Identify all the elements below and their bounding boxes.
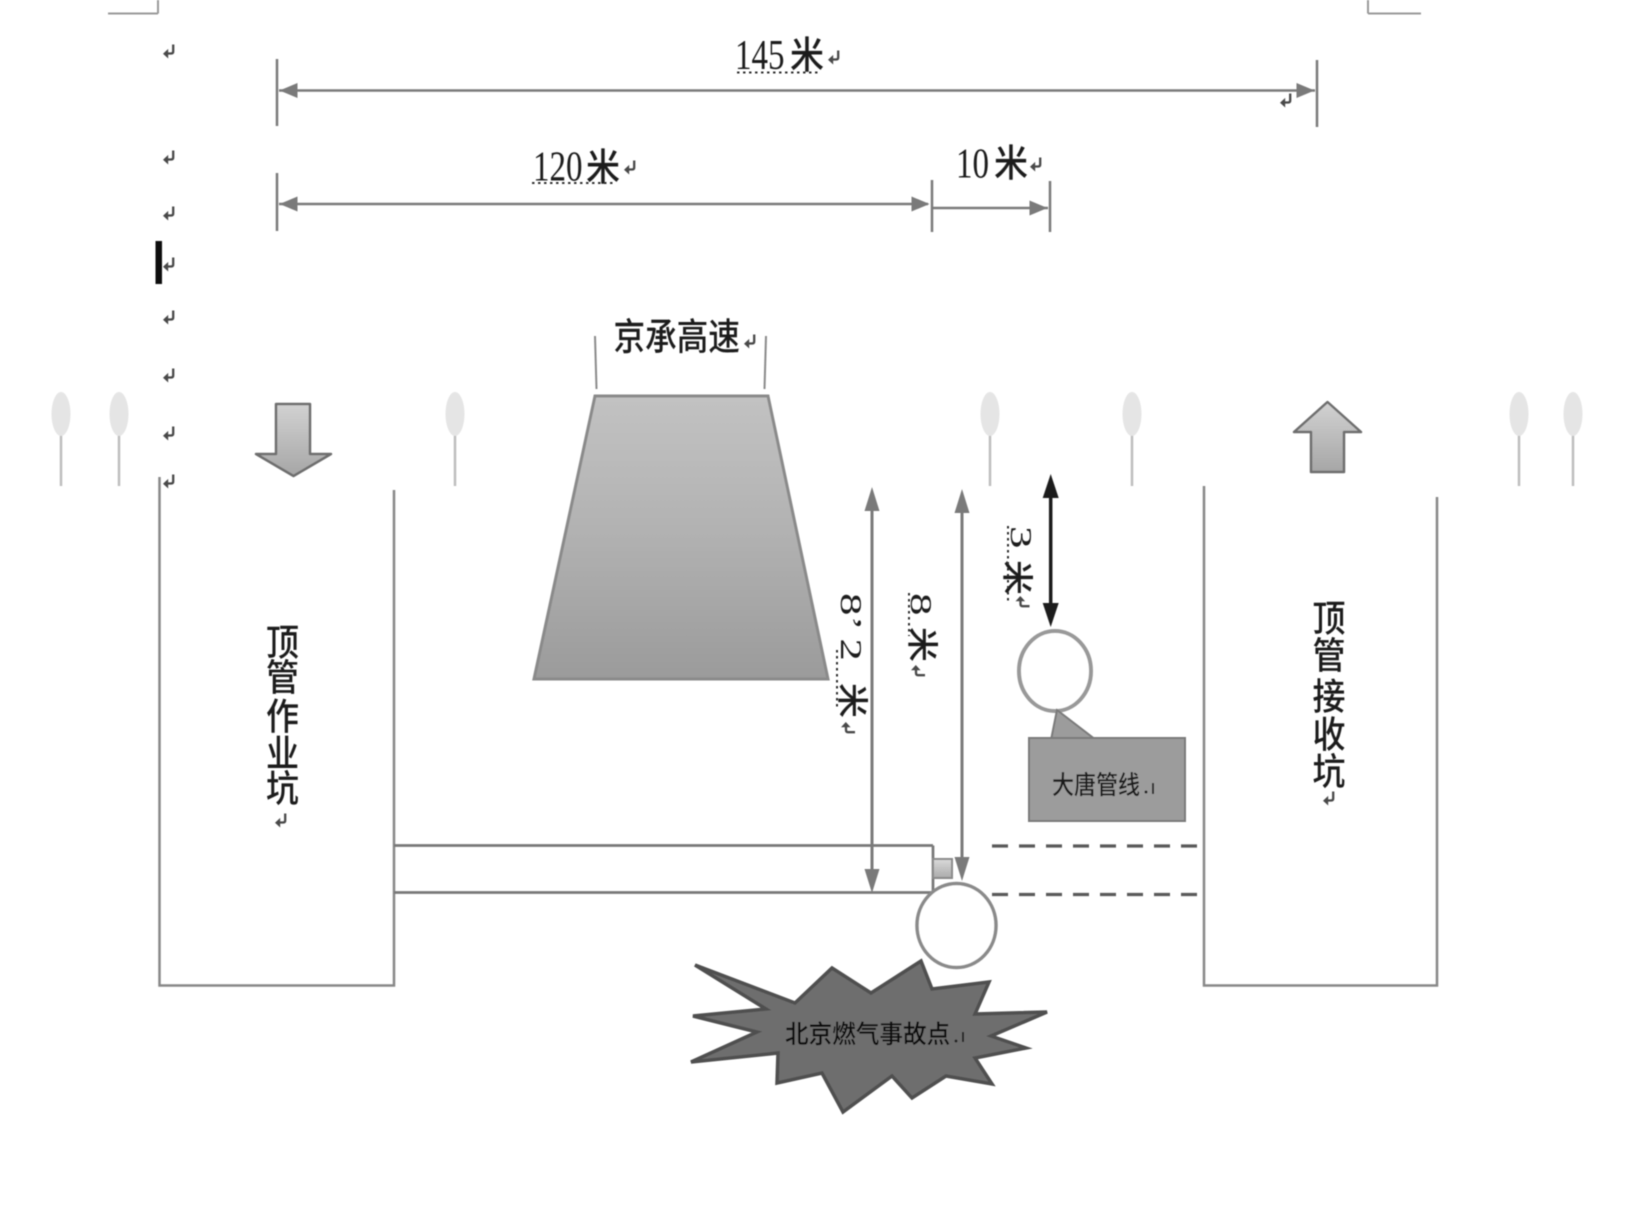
svg-text:8’ 2: 8’ 2 — [834, 593, 868, 661]
svg-text:10: 10 — [956, 141, 989, 188]
svg-text:145: 145 — [735, 32, 784, 79]
